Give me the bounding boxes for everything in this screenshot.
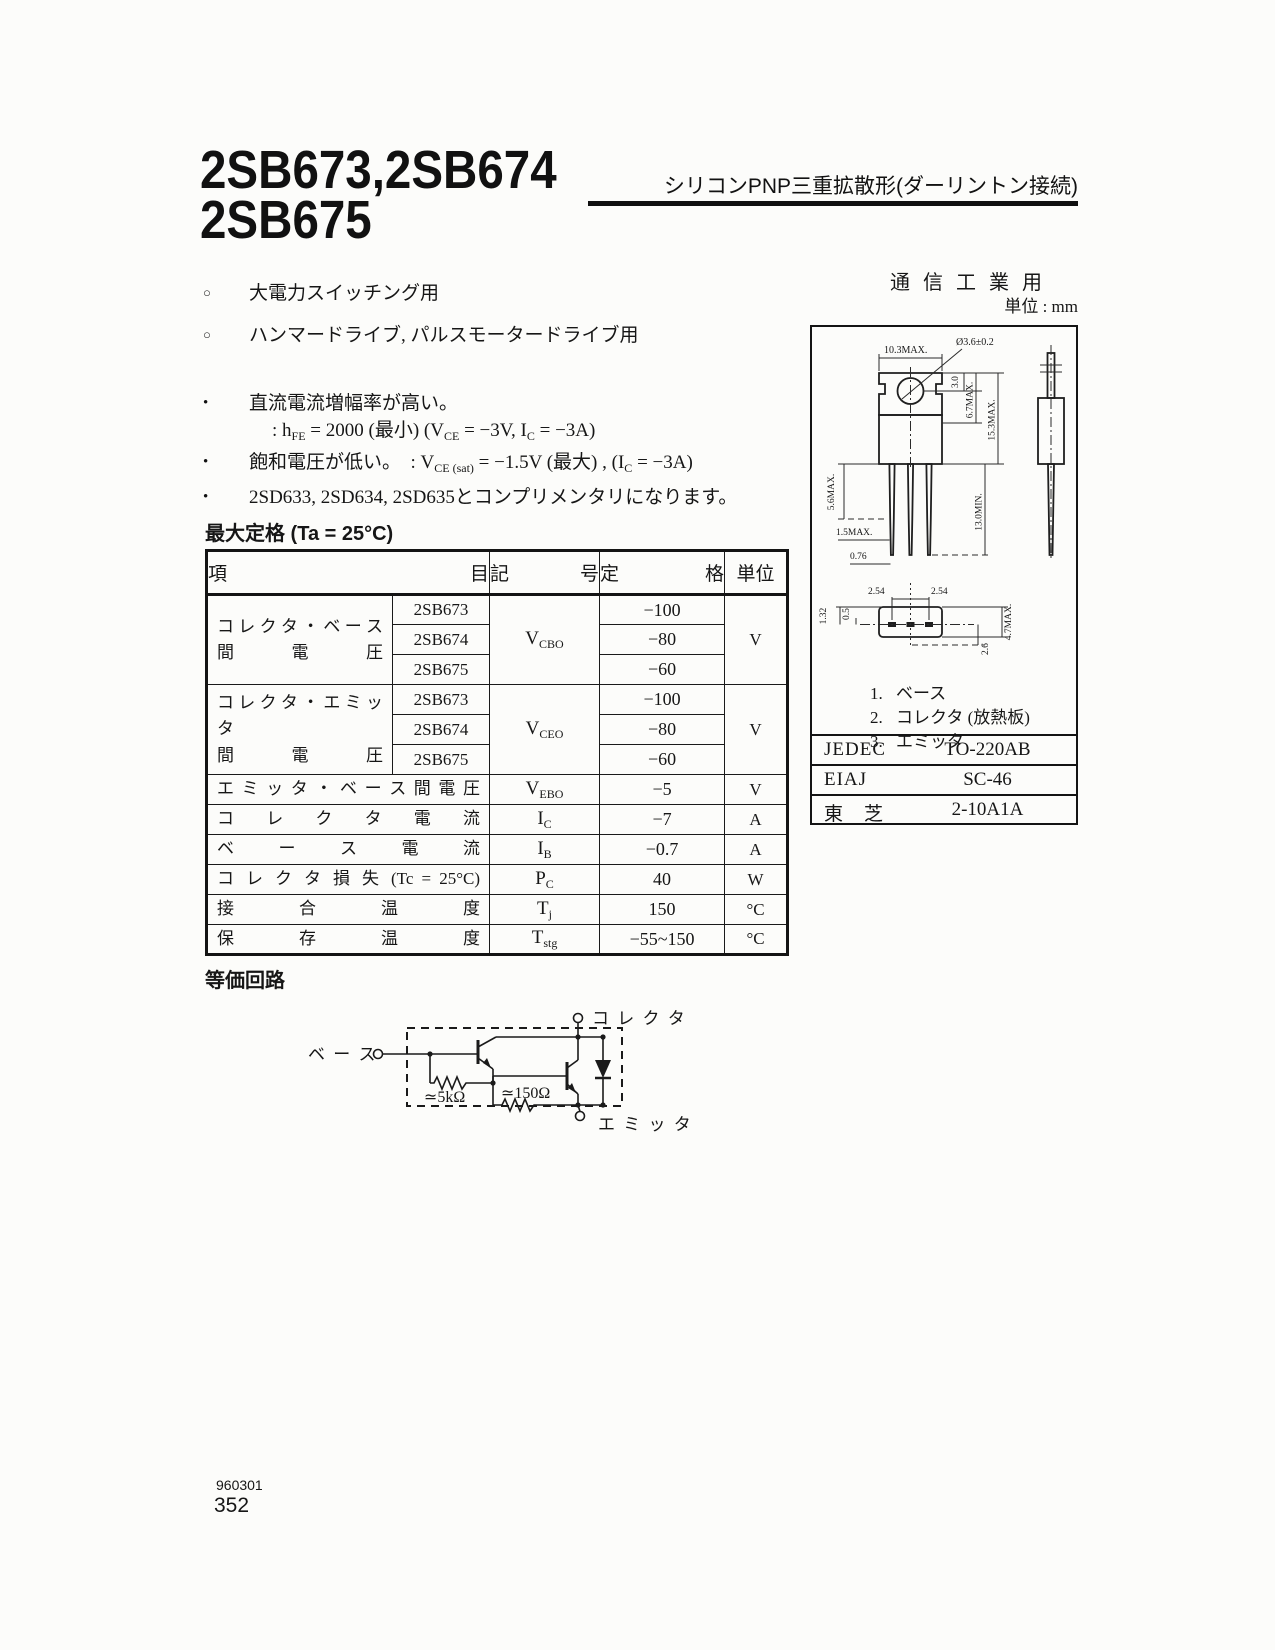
symbol-sub: j <box>549 907 552 921</box>
table-row: 接 合 温 度 Tj 150 °C <box>207 895 788 925</box>
footer-page-number: 352 <box>214 1494 249 1518</box>
feature-item: •直流電流増幅率が高い。 <box>203 388 458 415</box>
symbol-sub: CBO <box>539 637 564 651</box>
feature-formula-hfe: : hFE = 2000 (最小) (VCE = −3V, IC = −3A) <box>272 415 595 444</box>
application-text: 大電力スイッチング用 <box>249 283 439 304</box>
table-row: エ ミ ッ タ ・ ベ ー ス 間 電 圧 VEBO −5 V <box>207 775 788 805</box>
item-label: コ レ ク タ ・ エ ミ ッ タ <box>208 690 392 743</box>
table-row: ベ ー ス 電 流 IB −0.7 A <box>207 835 788 865</box>
dot-bullet-icon: • <box>203 395 249 412</box>
feature-text: 2SD633, 2SD634, 2SD635とコンプリメンタリになります。 <box>249 487 737 508</box>
symbol-tj: Tj <box>490 895 600 925</box>
dim-2-54-b: 2.54 <box>931 587 948 597</box>
footer-doc-code: 960301 <box>216 1477 263 1493</box>
t1-emitter-arrow <box>483 1058 491 1068</box>
dim-0-5: 0.5 <box>842 608 852 620</box>
table-row: コ レ ク タ ・ エ ミ ッ タ 間 電 圧 2SB673 VCEO −100… <box>207 685 788 715</box>
pin-number: 2. <box>870 706 896 730</box>
symbol-vcbo: VCBO <box>490 595 600 685</box>
device-cell: 2SB674 <box>393 715 490 745</box>
formula-sub: C <box>527 429 535 443</box>
emitter-label: エ ミ ッ タ <box>598 1115 693 1134</box>
resistor1-value: ≃5kΩ <box>424 1089 465 1106</box>
item-tj: 接 合 温 度 <box>208 896 489 922</box>
col-header-item: 項 目 <box>207 551 490 595</box>
device-cell: 2SB675 <box>393 655 490 685</box>
collector-terminal <box>574 1014 583 1023</box>
formula-text: 飽和電圧が低い。 : V <box>249 452 434 473</box>
circle-bullet-icon: ○ <box>203 285 249 301</box>
dim-15-3: 15.3MAX. <box>988 399 998 440</box>
unit-cell: °C <box>725 925 788 955</box>
symbol-vebo: VEBO <box>490 775 600 805</box>
value-cell: −80 <box>600 715 725 745</box>
package-drawing: 10.3MAX. Ø3.6±0.2 3.0 6.7MAX. 15.3MAX. 1… <box>812 327 1080 677</box>
diode-icon <box>595 1060 611 1078</box>
dim-width: 10.3MAX. <box>884 345 927 356</box>
symbol-sub: C <box>544 817 552 831</box>
symbol-pc: PC <box>490 865 600 895</box>
pin-number: 1. <box>870 682 896 706</box>
dim-1-32: 1.32 <box>819 607 829 624</box>
symbol-sub: EBO <box>539 787 563 801</box>
pin-name: ベース <box>896 684 946 703</box>
device-cell: 2SB673 <box>393 595 490 625</box>
page-subtitle: シリコンPNP三重拡散形(ダーリントン接続) <box>588 170 1078 200</box>
item-vceo: コ レ ク タ ・ エ ミ ッ タ 間 電 圧 <box>207 685 393 775</box>
unit-cell: V <box>725 685 788 775</box>
dim-13-0: 13.0MIN. <box>975 493 985 530</box>
symbol-sub: B <box>544 847 552 861</box>
dim-3-0: 3.0 <box>951 376 961 388</box>
value-cell: −100 <box>600 595 725 625</box>
package-bottom-view <box>879 607 942 637</box>
subtitle-underline <box>588 201 1078 206</box>
feature-text: 直流電流増幅率が高い。 <box>249 393 458 414</box>
item-vebo: エ ミ ッ タ ・ ベ ー ス 間 電 圧 <box>208 776 489 802</box>
max-ratings-table: 項 目 記 号 定 格 単位 コ レ ク タ ・ ベ ー ス 間 電 圧 2SB… <box>205 549 789 956</box>
symbol-ic: IC <box>490 805 600 835</box>
dimension-lines <box>836 345 1062 645</box>
dim-2-6: 2.6 <box>981 643 991 655</box>
page-title-line2: 2SB675 <box>200 193 372 247</box>
resistor2-value: ≃150Ω <box>501 1085 550 1102</box>
item-label: 間 電 圧 <box>208 743 392 769</box>
collector-label: コ レ ク タ <box>592 1009 687 1028</box>
pin-item: 1.ベース <box>870 682 1030 706</box>
emitter-terminal <box>576 1112 585 1121</box>
table-row: コ レ ク タ 電 流 IC −7 A <box>207 805 788 835</box>
dim-2-54-a: 2.54 <box>868 587 885 597</box>
symbol-base: V <box>526 778 540 799</box>
symbol-base: V <box>526 718 540 739</box>
item-label: 間 電 圧 <box>208 640 392 666</box>
max-ratings-heading: 最大定格 (Ta = 25°C) <box>205 517 393 546</box>
standard-row-toshiba: 東 芝 2-10A1A <box>812 794 1076 824</box>
item-ic: コ レ ク タ 電 流 <box>208 806 489 832</box>
value-cell: 40 <box>600 865 725 895</box>
unit-cell: °C <box>725 895 788 925</box>
value-cell: −7 <box>600 805 725 835</box>
unit-cell: V <box>725 775 788 805</box>
dim-hole: Ø3.6±0.2 <box>956 337 994 348</box>
value-cell: −60 <box>600 745 725 775</box>
dim-1-5: 1.5MAX. <box>836 528 872 538</box>
value-cell: −5 <box>600 775 725 805</box>
pin-name: コレクタ (放熱板) <box>896 708 1030 727</box>
formula-text: = −1.5V (最大) , (I <box>474 452 624 473</box>
use-label: 通 信 工 業 用 <box>890 266 1046 295</box>
standard-org: 東 芝 <box>824 799 884 826</box>
circle-bullet-icon: ○ <box>203 327 249 343</box>
col-header-unit: 単位 <box>725 551 788 595</box>
page-title-line1: 2SB673,2SB674 <box>200 143 557 197</box>
formula-text: = −3A) <box>535 420 595 441</box>
standard-row-eiaj: EIAJ SC-46 <box>812 764 1076 794</box>
equivalent-circuit-diagram: ベ ー ス コ レ ク タ エ ミ ッ タ ≃5kΩ ≃150Ω <box>280 948 700 1153</box>
unit-cell: A <box>725 805 788 835</box>
device-cell: 2SB674 <box>393 625 490 655</box>
unit-cell: W <box>725 865 788 895</box>
symbol-sub: CEO <box>539 727 563 741</box>
col-header-rating: 定 格 <box>600 551 725 595</box>
equiv-circuit-heading: 等価回路 <box>205 964 285 993</box>
formula-text: = −3A) <box>632 452 692 473</box>
symbol-base: V <box>525 628 539 649</box>
application-item: ○大電力スイッチング用 <box>203 278 439 305</box>
formula-text: = −3V, I <box>459 420 527 441</box>
symbol-sub: C <box>546 877 554 891</box>
application-text: ハンマードライブ, パルスモータードライブ用 <box>249 325 639 346</box>
item-ib: ベ ー ス 電 流 <box>208 836 489 862</box>
standard-value: TO-220AB <box>907 739 1068 761</box>
unit-cell: V <box>725 595 788 685</box>
feature-item: •2SD633, 2SD634, 2SD635とコンプリメンタリになります。 <box>203 482 737 509</box>
dim-5-6: 5.6MAX. <box>827 474 837 510</box>
dim-6-7: 6.7MAX. <box>966 382 976 418</box>
symbol-ib: IB <box>490 835 600 865</box>
package-outline-box: 10.3MAX. Ø3.6±0.2 3.0 6.7MAX. 15.3MAX. 1… <box>810 325 1078 825</box>
value-cell: −0.7 <box>600 835 725 865</box>
feature-item: •飽和電圧が低い。 : VCE (sat) = −1.5V (最大) , (IC… <box>203 447 693 476</box>
col-header-symbol: 記 号 <box>490 551 600 595</box>
value-cell: −60 <box>600 655 725 685</box>
formula-sub: CE <box>444 429 459 443</box>
device-cell: 2SB673 <box>393 685 490 715</box>
item-label: コ レ ク タ ・ ベ ー ス <box>208 614 392 640</box>
value-cell: −100 <box>600 685 725 715</box>
datasheet-page: 2SB673,2SB674 2SB675 シリコンPNP三重拡散形(ダーリントン… <box>0 0 1275 1650</box>
standard-org: JEDEC <box>824 739 886 761</box>
value-cell: 150 <box>600 895 725 925</box>
formula-text: : h <box>272 420 292 441</box>
dim-0-76: 0.76 <box>850 552 867 562</box>
dot-bullet-icon: • <box>203 489 249 506</box>
standard-org: EIAJ <box>824 769 867 791</box>
standard-row-jedec: JEDEC TO-220AB <box>812 734 1076 764</box>
table-header-row: 項 目 記 号 定 格 単位 <box>207 551 788 595</box>
symbol-base: T <box>532 927 544 948</box>
t2-emitter-arrow <box>568 1083 576 1093</box>
unit-label: 単位 : mm <box>940 292 1078 317</box>
table-row: コ レ ク タ ・ ベ ー ス 間 電 圧 2SB673 VCBO −100 V <box>207 595 788 625</box>
table-row: コ レ ク タ 損 失 (Tc = 25°C) PC 40 W <box>207 865 788 895</box>
device-cell: 2SB675 <box>393 745 490 775</box>
item-pc: コ レ ク タ 損 失 (Tc = 25°C) <box>208 866 489 892</box>
dot-bullet-icon: • <box>203 454 249 471</box>
standard-value: SC-46 <box>907 769 1068 791</box>
dim-4-7: 4.7MAX. <box>1004 604 1014 640</box>
formula-sub: FE <box>292 429 306 443</box>
application-item: ○ハンマードライブ, パルスモータードライブ用 <box>203 320 639 347</box>
standard-value: 2-10A1A <box>907 799 1068 821</box>
pin-item: 2.コレクタ (放熱板) <box>870 706 1030 730</box>
symbol-base: T <box>537 898 549 919</box>
unit-cell: A <box>725 835 788 865</box>
symbol-vceo: VCEO <box>490 685 600 775</box>
value-cell: −80 <box>600 625 725 655</box>
base-label: ベ ー ス <box>308 1045 378 1064</box>
symbol-base: P <box>535 868 546 889</box>
item-vcbo: コ レ ク タ ・ ベ ー ス 間 電 圧 <box>207 595 393 685</box>
formula-text: = 2000 (最小) (V <box>306 420 444 441</box>
formula-sub: CE (sat) <box>434 461 474 475</box>
